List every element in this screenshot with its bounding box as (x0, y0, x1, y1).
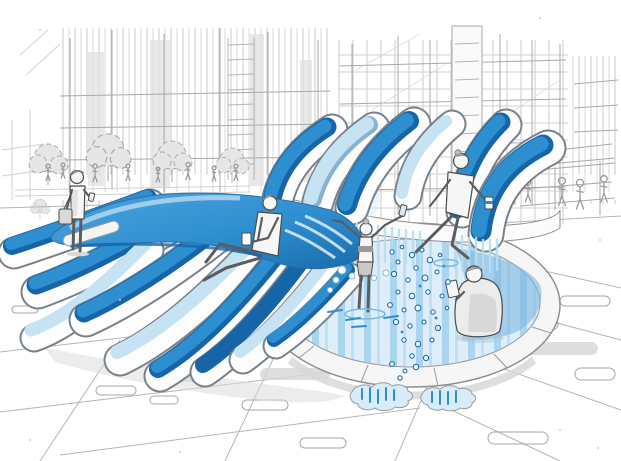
phone-small (88, 193, 95, 202)
shoulder-bag (59, 209, 72, 224)
puddle-1 (350, 383, 412, 411)
illustration: Hand-drawn concept sketch of a curved bl… (0, 0, 621, 461)
drink-cup (242, 233, 251, 245)
sketch-stage: Hand-drawn concept sketch of a curved bl… (0, 0, 621, 461)
